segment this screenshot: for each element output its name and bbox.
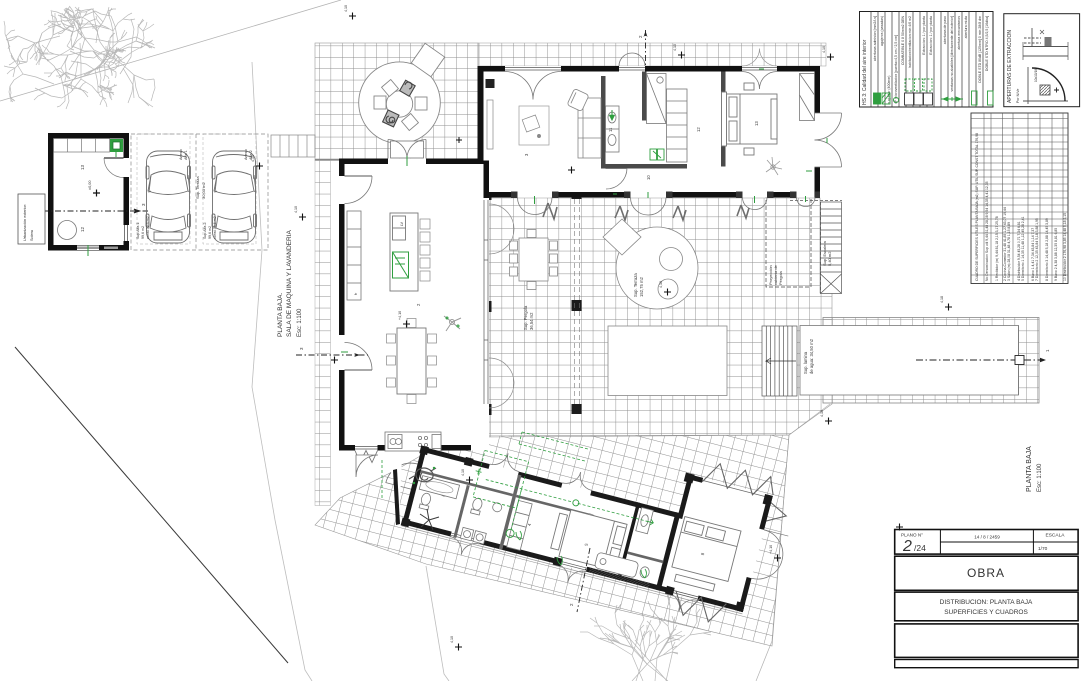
- svg-text:Sup. Pergola: Sup. Pergola: [523, 305, 528, 330]
- svg-text:DOBLE STD 80dB [125mm] 0 min: DOBLE STD 80dB [125mm] 0 min 28/8 dm: [978, 16, 982, 83]
- svg-text:OBRA: OBRA: [967, 566, 1005, 580]
- svg-text:4,10: 4,10: [822, 46, 826, 53]
- svg-text:Anexo: Anexo: [179, 149, 183, 160]
- svg-text:99,6 m2: 99,6 m2: [208, 226, 212, 239]
- svg-text:13: 13: [754, 121, 759, 126]
- svg-text:Alfa 1: Alfa 1: [184, 150, 188, 160]
- svg-text:36,54 m2: 36,54 m2: [529, 312, 534, 330]
- svg-text:4,10: 4,10: [344, 5, 348, 12]
- svg-text:Solera: Solera: [30, 229, 34, 241]
- svg-text:+4,10: +4,10: [398, 311, 402, 320]
- svg-text:APERTURAS DE EXTRACCION: APERTURAS DE EXTRACCION: [1007, 30, 1013, 103]
- svg-text:Anexo: Anexo: [244, 149, 248, 160]
- svg-text:9 Bano 2 4,38 3,8: 9 Bano 2 4,38 3,88 12,35 8,81 6,85: [1054, 228, 1058, 281]
- svg-text:habitacion/ventilacion min 4/6: habitacion/ventilacion min 4/6 m2: [908, 16, 912, 68]
- svg-text:const 30,6 m2: const 30,6 m2: [213, 216, 217, 239]
- svg-text:aberturas admision [mm2/l-s]: aberturas admision [mm2/l-s]: [873, 16, 877, 61]
- svg-text:10: 10: [646, 175, 651, 180]
- svg-text:30,00 m2: 30,00 m2: [201, 182, 206, 199]
- svg-text:DISTRIBUCION: PLANTA BAJA: DISTRIBUCION: PLANTA BAJA: [940, 599, 1033, 606]
- svg-text:Sup. lamina: Sup. lamina: [803, 351, 808, 374]
- svg-text:4F microventilacion [puerta=4,: 4F microventilacion [puerta=4,5 cm / 2,5…: [894, 35, 898, 104]
- svg-text:12: 12: [696, 127, 701, 132]
- svg-text:+4,10: +4,10: [769, 545, 773, 554]
- svg-text:PLANTA BAJA.: PLANTA BAJA.: [277, 292, 284, 337]
- svg-text:Esc: 1:100: Esc: 1:100: [297, 308, 303, 337]
- svg-text:Sup Alfa 1:: Sup Alfa 1:: [136, 222, 140, 239]
- svg-text:PLANTA BAJA: PLANTA BAJA: [1026, 446, 1033, 492]
- svg-text:agujeros (pasadas): agujeros (pasadas): [880, 16, 884, 46]
- svg-text:HS 3: Calidad del aire interio: HS 3: Calidad del aire interior: [862, 39, 868, 105]
- svg-text:5 Dormitorio 1 14,35 11,: 5 Dormitorio 1 14,35 11,48 1,12 45,28 2,…: [1021, 216, 1025, 281]
- svg-text:11: 11: [608, 127, 613, 132]
- svg-text:1 Recibidor (m) 9,44 81,: 1 Recibidor (m) 9,44 81,18 2,15 3,17 25,…: [995, 216, 999, 281]
- svg-text:Urbanización exterior:: Urbanización exterior:: [23, 204, 27, 241]
- svg-text:PLANO N°: PLANO N°: [901, 533, 923, 538]
- svg-text:4,10: 4,10: [450, 636, 454, 643]
- svg-text:de agua: 34,50 m2: de agua: 34,50 m2: [809, 338, 814, 374]
- svg-text:abertura mecanismos: abertura mecanismos: [957, 16, 961, 50]
- svg-text:abertura mixta: abertura mixta: [964, 16, 968, 38]
- svg-text:1/70: 1/70: [1038, 546, 1048, 552]
- svg-text:4,10: 4,10: [659, 281, 663, 288]
- svg-text:CUADRO DE SUPERFICIES UTILES P: CUADRO DE SUPERFICIES UTILES PLANTA BAJA…: [975, 133, 979, 281]
- svg-text:Por N/Ve: Por N/Ve: [1016, 89, 1020, 103]
- svg-text:ventanas no abatibles [directa: ventanas no abatibles [directamente del …: [950, 16, 954, 92]
- svg-text:5,40 m2: 5,40 m2: [827, 251, 832, 266]
- svg-text:12: 12: [80, 226, 85, 232]
- svg-text:aberturas de paso: aberturas de paso: [943, 16, 947, 44]
- svg-text:No Denominacion Sup util 9: No Denominacion Sup util 9,44 31,48 28,0…: [985, 181, 989, 281]
- svg-text:10x10/18: 10x10/18: [1034, 69, 1038, 82]
- svg-text:/24: /24: [914, 543, 926, 553]
- svg-text:ESCALA: ESCALA: [1046, 533, 1066, 539]
- svg-text:4,10: 4,10: [251, 155, 255, 162]
- svg-text:SALA DE MAQUINA Y LAVANDERIA: SALA DE MAQUINA Y LAVANDERIA: [286, 230, 293, 337]
- svg-text:4,10: 4,10: [820, 410, 824, 417]
- svg-text:3 Salon (m) 28,08 31,: 3 Salon (m) 28,08 31,48 4,78 1,15 8,89: [1007, 222, 1011, 281]
- svg-text:const 30,6 m2: const 30,6 m2: [146, 216, 150, 239]
- svg-text:DOBLE STD NTRO 4,5/2,5 [16dba]: DOBLE STD NTRO 4,5/2,5 [16dba]: [985, 16, 989, 71]
- svg-text:2: 2: [902, 538, 912, 555]
- svg-text:14 / 8 / 2459: 14 / 8 / 2459: [974, 535, 1000, 540]
- svg-text:Sup Alfa 2:: Sup Alfa 2:: [203, 222, 207, 239]
- svg-text:99,6 m2: 99,6 m2: [141, 226, 145, 239]
- svg-text:4,18: 4,18: [940, 296, 944, 303]
- svg-text:±0,00: ±0,00: [88, 181, 92, 190]
- svg-text:10 Distribuidor 2 176,98 3,: 10 Distribuidor 2 176,98 3,85 14,48 5,18…: [1063, 213, 1067, 281]
- svg-text:SUPERFICIES Y CUADROS: SUPERFICIES Y CUADROS: [944, 609, 1028, 616]
- svg-text:Sup. Terraza: Sup. Terraza: [195, 176, 200, 199]
- svg-text:Sup. Terraza: Sup. Terraza: [633, 273, 638, 297]
- svg-text:4,10: 4,10: [673, 44, 677, 51]
- svg-text:COMBATIBLE 0 8 50mm2 DEN: COMBATIBLE 0 8 50mm2 DEN: [901, 16, 905, 66]
- svg-text:7 Dormitorio 2 12,35 43,: 7 Dormitorio 2 12,35 43,84 5,18 3,88 1,9…: [1035, 218, 1039, 281]
- svg-text:Extraccion: 1 / por planta: Extraccion: 1 / por planta: [922, 16, 926, 55]
- svg-text:Pérgola: Pérgola: [778, 270, 783, 285]
- svg-text:8 Dormitorio 3 14,48 5,1: 8 Dormitorio 3 14,48 5,18 2,88 14,45 3,8…: [1045, 218, 1049, 281]
- svg-text:13: 13: [80, 164, 85, 170]
- svg-text:4,10: 4,10: [294, 206, 298, 213]
- svg-text:4,10: 4,10: [461, 469, 465, 476]
- svg-text:152,75 m2: 152,75 m2: [639, 277, 644, 297]
- svg-text:LV: LV: [400, 221, 404, 226]
- svg-text:Esc: 1:100: Esc: 1:100: [1037, 463, 1043, 492]
- svg-text:Extraccion: 1 / por planta: Extraccion: 1 / por planta: [929, 16, 933, 55]
